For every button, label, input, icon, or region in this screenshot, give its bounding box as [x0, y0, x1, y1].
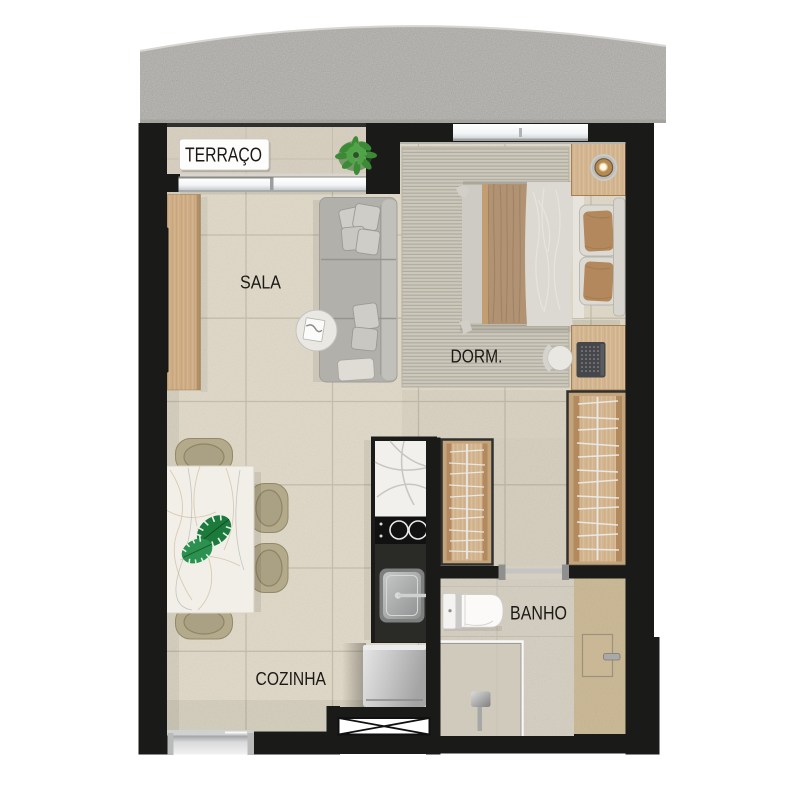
svg-text:SALA: SALA: [240, 272, 282, 293]
svg-text:BANHO: BANHO: [510, 603, 567, 625]
svg-text:TERRAÇO: TERRAÇO: [185, 145, 262, 167]
svg-text:COZINHA: COZINHA: [256, 668, 327, 689]
svg-text:DORM.: DORM.: [451, 346, 503, 367]
